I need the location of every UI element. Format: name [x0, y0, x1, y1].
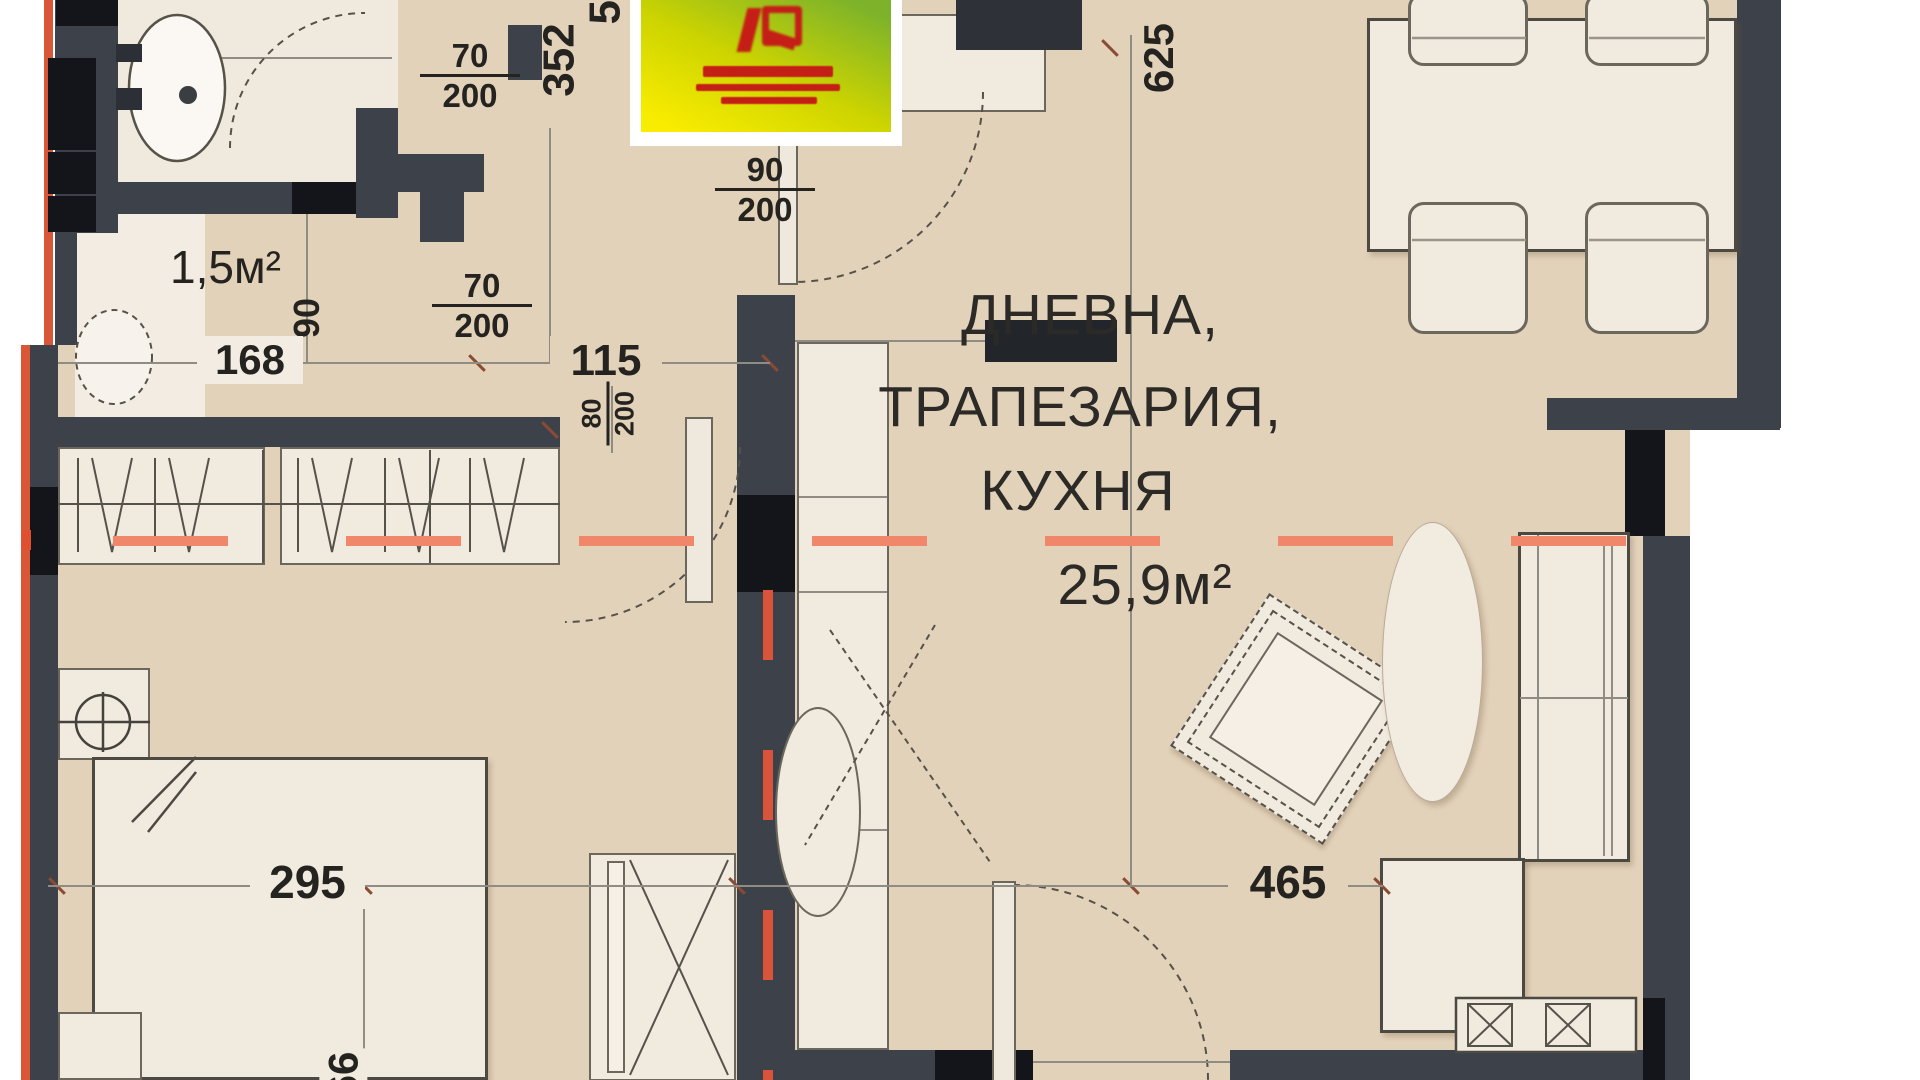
- logo-text-bar-1: [703, 66, 833, 77]
- room-label-line3: КУХНЯ: [928, 458, 1228, 524]
- bedroom-cabinet-icon: [590, 854, 735, 1080]
- toilet-icon: [76, 310, 152, 404]
- plant-icon: [776, 625, 990, 916]
- logo-card: [630, 0, 902, 146]
- sink-drain: [179, 86, 197, 104]
- dim-living-length-text: 625: [1135, 18, 1183, 96]
- bedroom-door-arc: [565, 447, 740, 622]
- bedroom-door-leaf: [686, 418, 712, 602]
- axis-line-horizontal: [113, 536, 1630, 546]
- lamp-icon: [55, 692, 150, 752]
- faucet-1: [116, 44, 142, 62]
- dim-living-width: 465: [1228, 855, 1348, 909]
- balcony-door-leaf: [993, 882, 1015, 1080]
- dim-bedroom-width: 295: [250, 855, 365, 909]
- dim-opening-leaf-den: 200: [611, 381, 639, 445]
- logo-text-bar-3: [721, 97, 817, 104]
- dim-bed-length-clipped: 66: [318, 1030, 368, 1080]
- chair-seat-lines: [1412, 38, 1705, 240]
- bed-fold: [132, 757, 196, 832]
- logo-emblem-icon: [736, 6, 798, 58]
- dim-opening-leaf-inner: 80 200: [578, 381, 639, 445]
- dim-living-length: 625: [1126, 5, 1192, 110]
- dim-line-horiz-bottom: [48, 885, 1383, 887]
- dim-bed-length-clipped-text: 66: [319, 1049, 367, 1080]
- room-label-line2: ТРАПЕЗАРИЯ,: [860, 374, 1300, 440]
- dim-opening-leaf-num: 80: [578, 381, 606, 445]
- axis-tick-left-wall: [22, 530, 31, 550]
- dim-entry-door-den: 200: [715, 192, 815, 227]
- room-area-label: 25,9м²: [995, 552, 1295, 618]
- dim-wc-width: 168: [197, 336, 303, 384]
- dim-entry-door: 90 200: [715, 152, 815, 227]
- dim-90-text: 90: [286, 298, 328, 338]
- room-label-line1: ДНЕВНА,: [890, 282, 1290, 348]
- sink-icon: [129, 15, 225, 161]
- faucet-2: [116, 88, 142, 110]
- dim-entry-door-num: 90: [715, 152, 815, 187]
- floor-plan-canvas: 70 200 352 53 90 200 625 1,5м² 90 70 200…: [0, 0, 1920, 1080]
- dim-line-horiz-mid: [58, 362, 770, 364]
- dim-opening-leaf: 80 200: [558, 368, 658, 458]
- balcony-door-arc: [1013, 885, 1208, 1080]
- dim-wc-door-den: 200: [432, 308, 532, 343]
- tv-cabinet-icon: [1456, 998, 1636, 1052]
- bathroom-door-arc: [230, 13, 365, 148]
- closet-hangers-icon: [58, 450, 560, 563]
- sofa-lines: [1520, 535, 1628, 859]
- axis-line-vertical: [763, 590, 773, 1080]
- dim-wc-door: 70 200: [432, 268, 532, 343]
- dim-wc-door-num: 70: [432, 268, 532, 303]
- dim-line-vert-352: [549, 128, 551, 364]
- dim-hall-length-clipped-text: 53: [580, 0, 630, 24]
- logo-text-bar-2: [696, 84, 840, 91]
- logo-gradient: [641, 0, 891, 132]
